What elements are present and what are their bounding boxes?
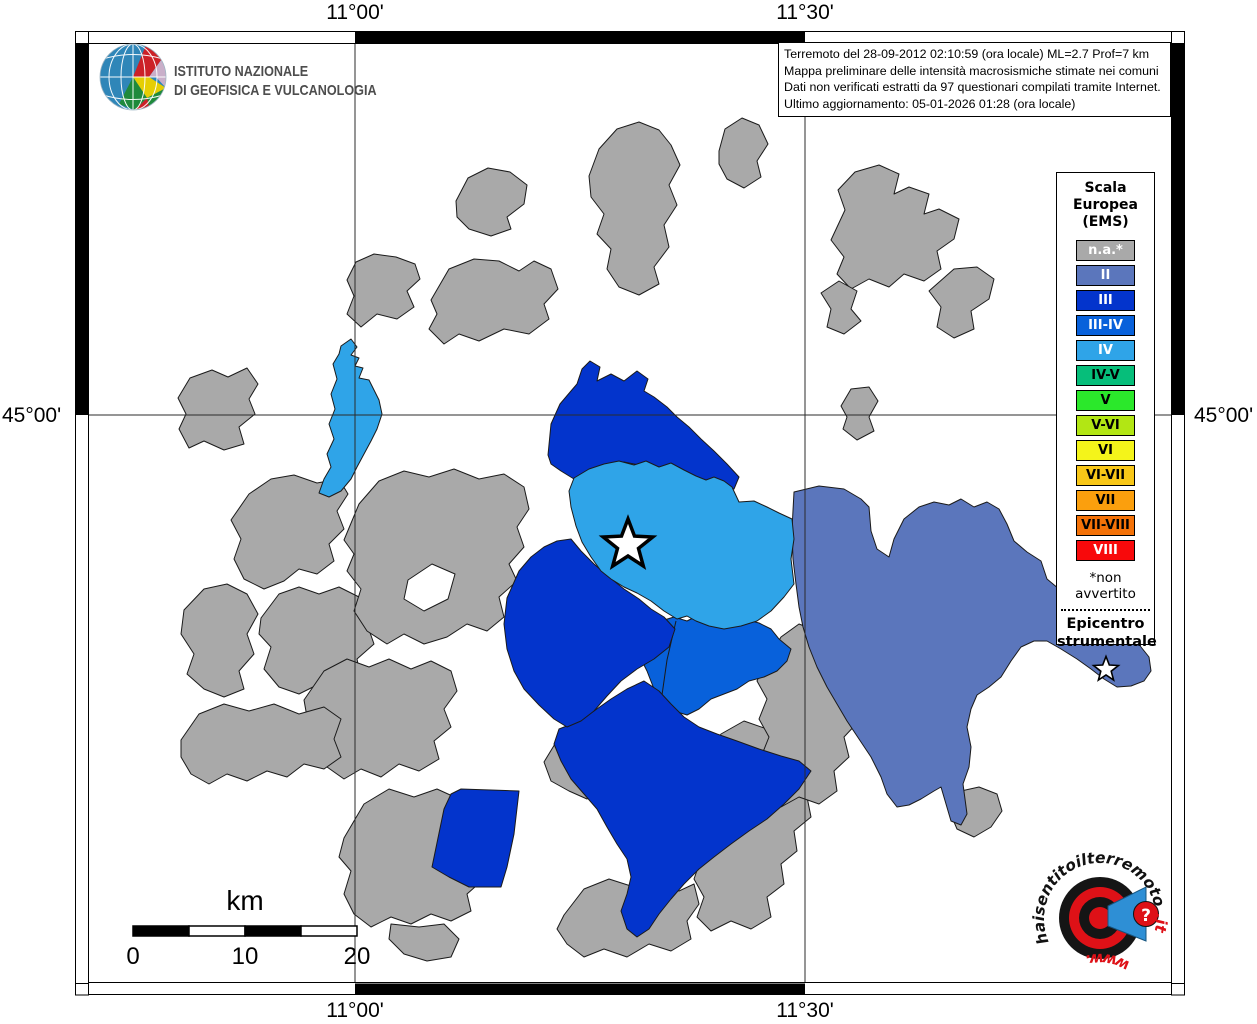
municipality-na (929, 267, 994, 338)
municipality-na (344, 469, 529, 644)
legend-epicenter-star-icon (1091, 654, 1121, 684)
scale-tick-20: 20 (344, 943, 371, 971)
municipality-na (178, 368, 258, 450)
legend-swatch-v-vi: V-VI (1076, 415, 1135, 436)
legend-swatch-vi-vii: VI-VII (1076, 465, 1135, 486)
scale-tick-10: 10 (232, 943, 259, 971)
municipality-na (456, 168, 527, 236)
municipality-na (181, 704, 341, 784)
legend-swatch-vi: VI (1076, 440, 1135, 461)
legend-swatch-iii-iv: III-IV (1076, 315, 1135, 336)
legend-swatch-ii: II (1076, 265, 1135, 286)
municipality-na (831, 165, 959, 289)
info-line-updated: Ultimo aggiornamento: 05-01-2026 01:28 (… (784, 96, 1165, 113)
info-line-event: Terremoto del 28-09-2012 02:10:59 (ora l… (784, 46, 1165, 63)
svg-text:www.: www. (1083, 950, 1132, 976)
municipality-na (821, 281, 861, 334)
seismic-intensity-map-page: ? haisentitoilterremoto .it www. 11°00' … (0, 0, 1257, 1024)
municipality-na (347, 254, 420, 327)
legend-swatch-viii: VIII (1076, 540, 1135, 561)
ingv-name-line2: DI GEOFISICA E VULCANOLOGIA (174, 81, 377, 100)
legend-epicenter-label: Epicentro strumentale (1057, 615, 1154, 651)
legend-footnote: *non avvertito (1057, 570, 1154, 602)
legend-swatch-v: V (1076, 390, 1135, 411)
info-line-data: Dati non verificati estratti da 97 quest… (784, 79, 1165, 96)
legend-swatch-vii-viii: VII-VIII (1076, 515, 1135, 536)
scale-bar (133, 926, 357, 936)
municipality-na (429, 259, 558, 344)
watermark-www: www. (1083, 950, 1132, 976)
ems-legend-panel: Scala Europea (EMS) n.a.* II III III-IV … (1056, 172, 1155, 645)
info-line-map: Mappa preliminare delle intensità macros… (784, 63, 1165, 80)
ingv-logo-wordmark[interactable]: ISTITUTO NAZIONALE DI GEOFISICA E VULCAN… (174, 62, 377, 100)
legend-divider (1061, 609, 1150, 611)
legend-swatch-iii: III (1076, 290, 1135, 311)
municipality-na (719, 118, 768, 188)
grid-label-top-11-30: 11°30' (776, 1, 834, 25)
municipality-na (389, 924, 459, 961)
grid-label-bottom-11-30: 11°30' (776, 999, 834, 1023)
grid-label-top-11-00: 11°00' (326, 1, 384, 25)
legend-swatch-vii: VII (1076, 490, 1135, 511)
watermark-domain-tld: .it (1151, 912, 1170, 934)
legend-title: Scala Europea (EMS) (1057, 180, 1154, 231)
legend-swatch-iv-v: IV-V (1076, 365, 1135, 386)
grid-label-left-45-00: 45°00' (2, 404, 61, 428)
municipality-na (589, 122, 680, 295)
municipality-na (841, 387, 878, 440)
earthquake-info-box: Terremoto del 28-09-2012 02:10:59 (ora l… (778, 42, 1171, 117)
legend-swatch-na: n.a.* (1076, 240, 1135, 261)
municipality-na (181, 584, 258, 697)
scale-bar-unit: km (226, 885, 263, 917)
municipality-intensity-IV (319, 339, 382, 497)
grid-label-right-45-00: 45°00' (1194, 404, 1253, 428)
legend-swatch-iv: IV (1076, 340, 1135, 361)
haisentito-watermark-logo[interactable]: ? haisentitoilterremoto .it www. (1030, 849, 1170, 975)
ingv-name-line1: ISTITUTO NAZIONALE (174, 62, 377, 81)
grid-label-bottom-11-00: 11°00' (326, 999, 384, 1023)
ingv-logo-globe[interactable] (100, 44, 176, 111)
question-mark: ? (1141, 906, 1151, 926)
scale-tick-0: 0 (126, 943, 139, 971)
